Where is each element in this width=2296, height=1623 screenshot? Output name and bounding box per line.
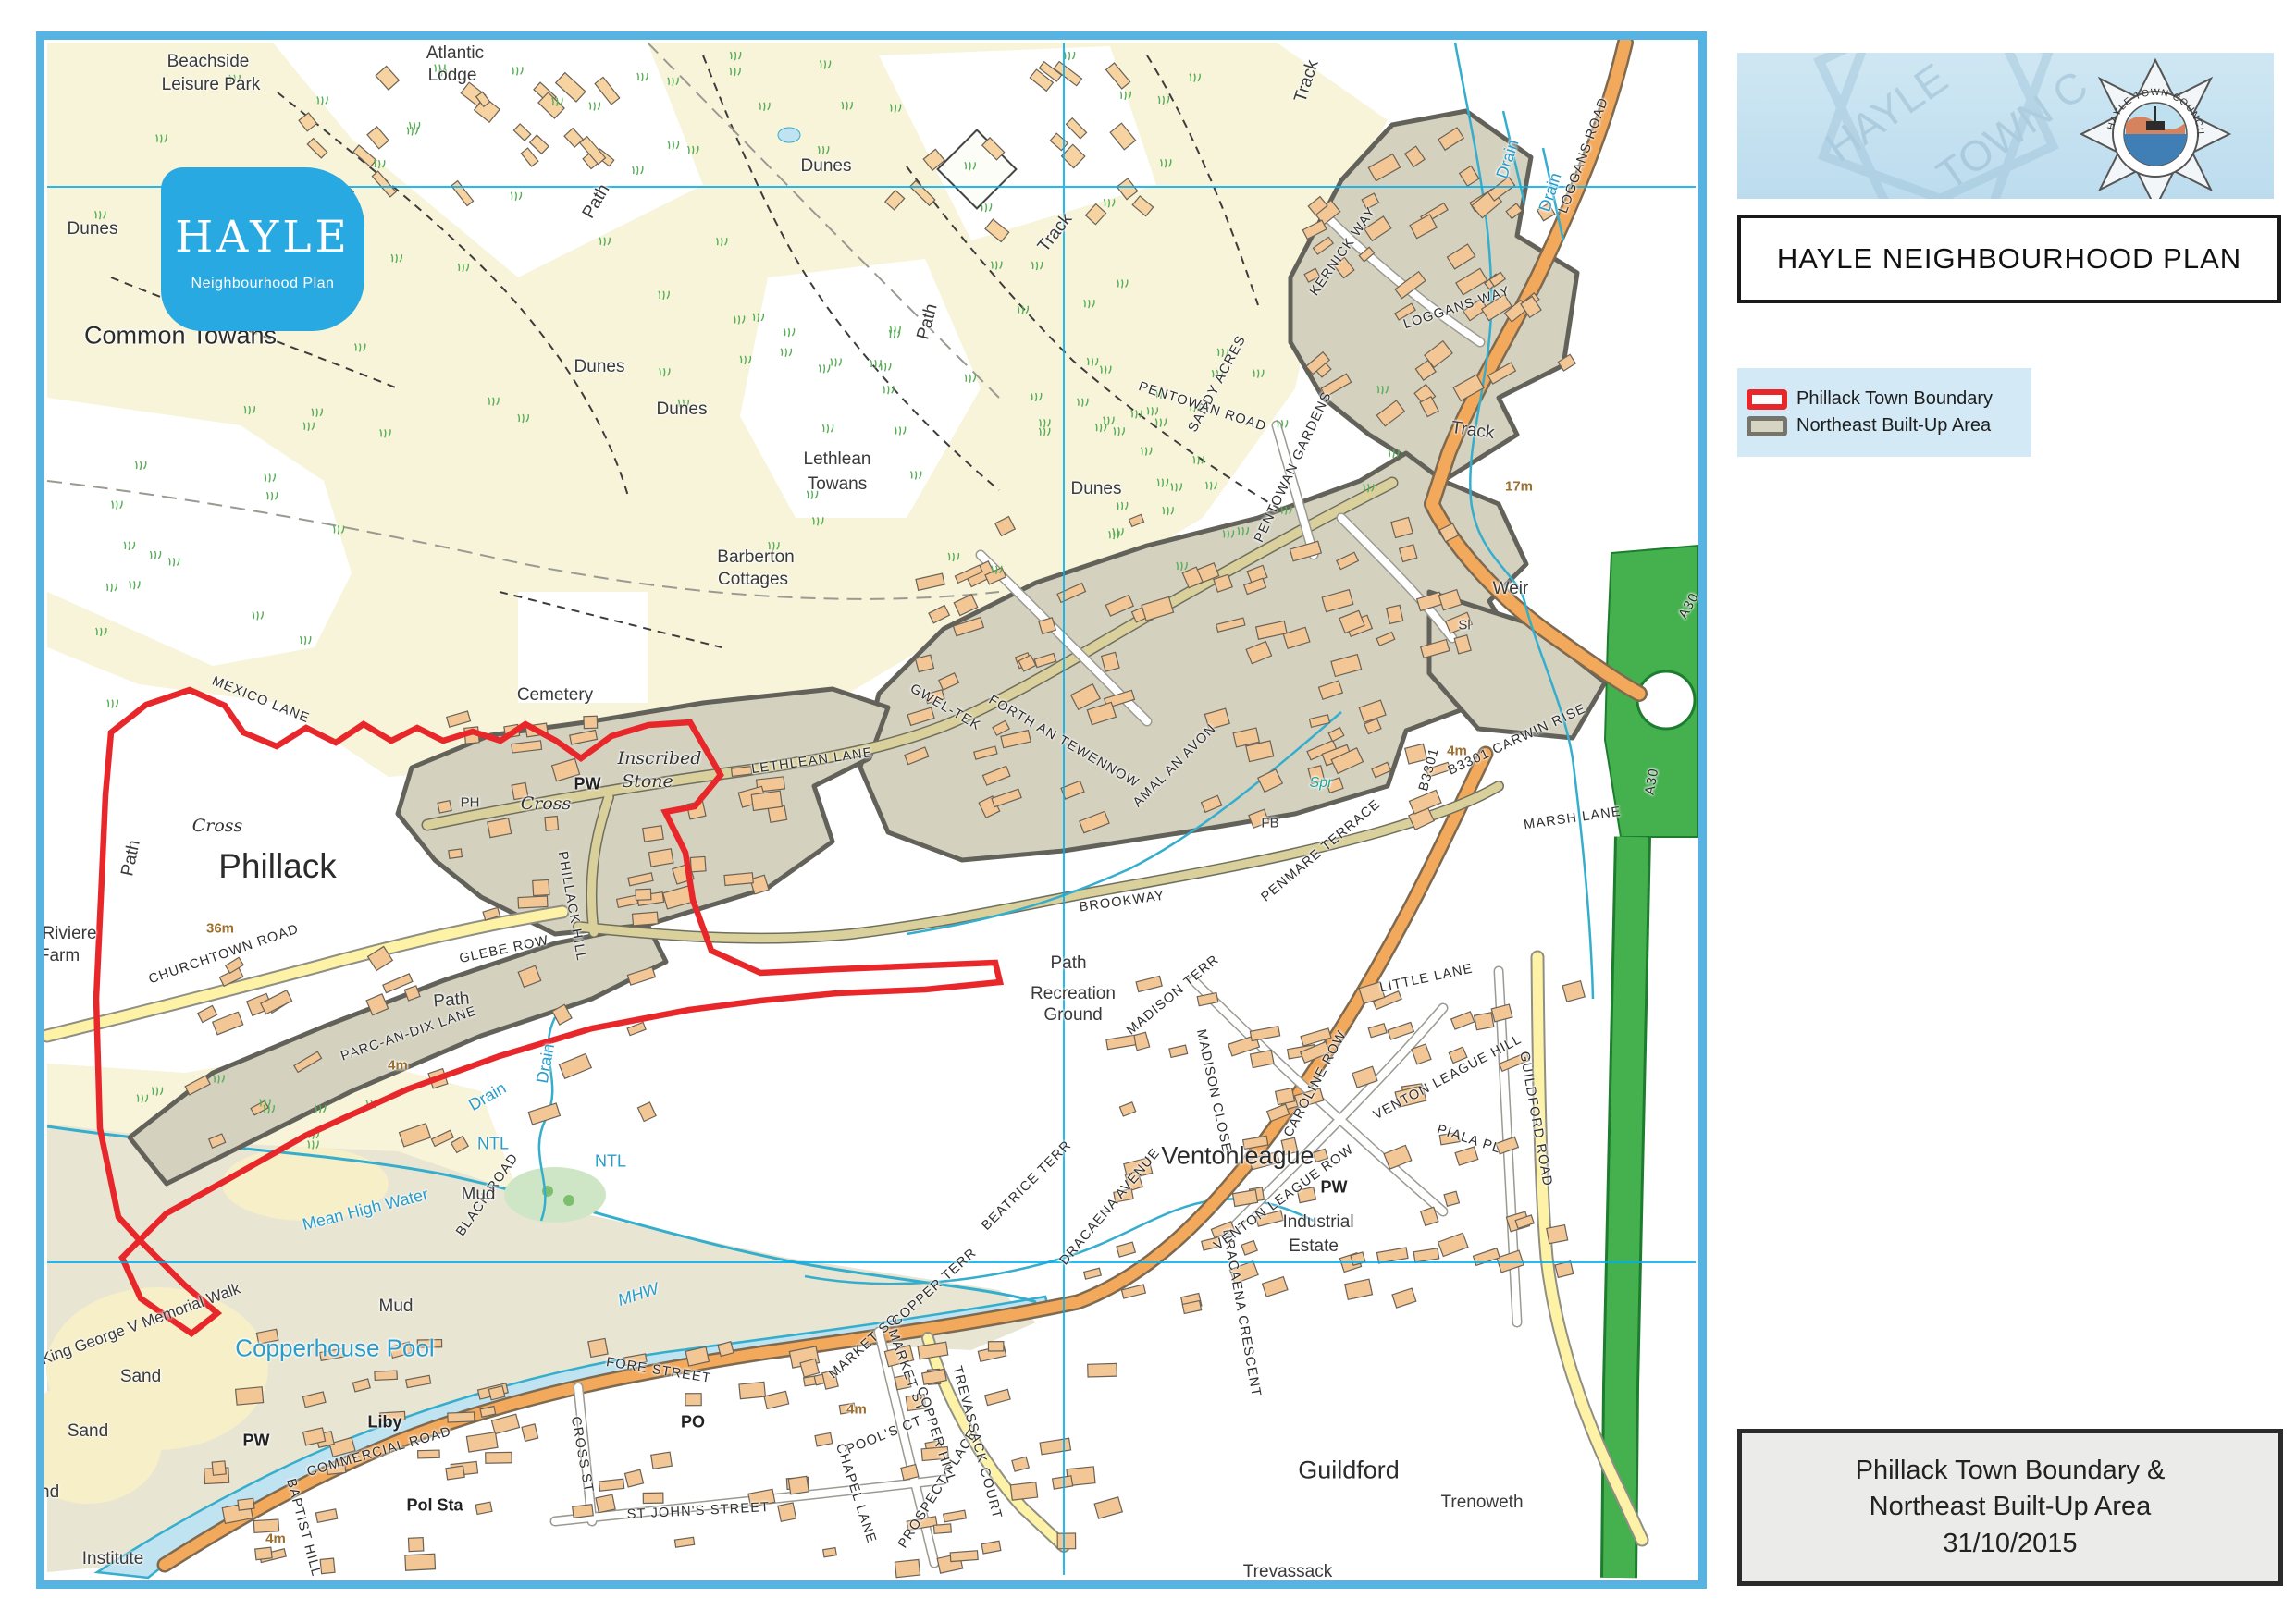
map-label: COMMERCIAL ROAD — [305, 1424, 453, 1480]
map-label: MARSH LANE — [1523, 805, 1622, 833]
svg-text:TOWN C: TOWN C — [1928, 61, 2096, 199]
map-label: Trenoweth — [1440, 1493, 1523, 1513]
page: BeachsideLeisure ParkAtlanticLodgeDunesC… — [0, 0, 2296, 1623]
map-label: Stone — [622, 771, 673, 792]
map-label: Ventonleague — [1161, 1142, 1314, 1171]
legend-label: Northeast Built-Up Area — [1796, 415, 1991, 436]
map-label: COPPER HILL — [914, 1385, 959, 1486]
caption-line-3: 31/10/2015 — [1943, 1526, 2077, 1562]
map-label: Path — [913, 301, 942, 341]
map-label: Estate — [1289, 1236, 1339, 1257]
map-label: DRACAENA CRESCENT — [1219, 1228, 1264, 1398]
map-canvas[interactable]: BeachsideLeisure ParkAtlanticLodgeDunesC… — [36, 31, 1707, 1589]
map-label: A30 — [1643, 767, 1662, 796]
map-label: COPPER TERR — [889, 1246, 980, 1330]
map-label: MHW — [615, 1279, 660, 1310]
legend-item-boundary: Phillack Town Boundary — [1747, 388, 2031, 410]
legend: Phillack Town Boundary Northeast Built-U… — [1737, 368, 2031, 457]
map-label: Dunes — [657, 400, 708, 420]
map-label: MEXICO LANE — [210, 674, 312, 727]
map-label: Track — [1034, 210, 1077, 256]
map-label: NTL — [477, 1135, 509, 1154]
map-label: B3301 CARWIN RISE — [1446, 701, 1588, 778]
map-label: GLEBE ROW — [458, 933, 550, 966]
map-label: Leisure Park — [162, 75, 261, 95]
map-label: PH — [461, 795, 480, 811]
legend-label: Phillack Town Boundary — [1796, 388, 1993, 410]
map-label: Phillack — [218, 847, 337, 886]
map-label: Dunes — [1071, 479, 1122, 499]
map-label: Mean High Water — [301, 1185, 430, 1235]
map-label: Cemetery — [517, 685, 593, 706]
caption-line-2: Northeast Built-Up Area — [1870, 1489, 2152, 1525]
map-label: LETHLEAN LANE — [750, 745, 873, 777]
council-crest-icon: HAYLE TOWN C HAYLE TOWN COUNCIL — [1737, 53, 2274, 199]
map-label: Drain — [533, 1042, 559, 1085]
map-label: POOL'S CT — [845, 1413, 925, 1457]
map-label: Lodge — [428, 66, 477, 86]
map-label: Inscribed — [618, 748, 702, 768]
map-label: Drain — [465, 1078, 510, 1115]
map-label: FORTH AN TEWENNOW — [986, 693, 1142, 791]
map-label: Cottages — [718, 570, 788, 590]
map-label: LOGGANS WAY — [1401, 284, 1512, 332]
map-label: Riviere — [44, 924, 97, 944]
map-label: Dunes — [574, 357, 625, 377]
map-label: 17m — [1505, 479, 1533, 495]
map-label: DRACAENA AVENUE — [1057, 1146, 1164, 1269]
boundary-swatch-icon — [1747, 389, 1787, 410]
map-label: LOGGANS ROAD — [1556, 95, 1611, 215]
hayle-np-logo: HAYLE Neighbourhood Plan — [161, 167, 364, 331]
map-label: B3301 — [1416, 746, 1442, 793]
map-label: PW — [1321, 1178, 1348, 1198]
map-label: Barberton — [717, 547, 794, 568]
map-label: 4m — [265, 1531, 286, 1547]
map-label: AMAL AN AVON — [1130, 721, 1219, 810]
map-label: Drain — [1492, 137, 1523, 180]
map-label: Beachside — [167, 52, 250, 72]
map-label: KERNICK WAY — [1307, 204, 1379, 299]
map-label: 36m — [206, 921, 234, 937]
map-label: PARC-AN-DIX LANE — [339, 1003, 478, 1064]
map-label: Dunes — [68, 219, 118, 240]
map-label: Sand — [44, 1482, 59, 1503]
caption-line-1: Phillack Town Boundary & — [1856, 1453, 2166, 1489]
map-label: Path — [433, 989, 471, 1012]
map-label: Track — [1290, 57, 1323, 105]
map-label: CHAPEL LANE — [833, 1442, 879, 1545]
map-label: Industrial — [1282, 1212, 1353, 1233]
map-label: 4m — [1447, 744, 1467, 759]
map-label: GWEL-TEK — [907, 682, 983, 734]
map-caption-box: Phillack Town Boundary & Northeast Built… — [1737, 1429, 2283, 1586]
map-label: Recreation — [1031, 984, 1116, 1004]
council-crest-banner: HAYLE TOWN C HAYLE TOWN COUNCIL — [1737, 53, 2274, 199]
map-label: Path — [579, 181, 615, 223]
builtup-swatch-icon — [1747, 416, 1787, 436]
map-label: Lethlean — [804, 449, 871, 470]
logo-subtitle: Neighbourhood Plan — [161, 276, 364, 292]
map-label: LITTLE LANE — [1378, 962, 1475, 996]
map-label: Sand — [120, 1367, 161, 1387]
map-label: FB — [1261, 816, 1278, 831]
map-label: Sl — [1458, 618, 1470, 633]
legend-item-builtup: Northeast Built-Up Area — [1747, 415, 2031, 436]
logo-title: HAYLE — [161, 212, 364, 263]
map-label: Towans — [808, 474, 867, 495]
map-label: Liby — [367, 1413, 401, 1432]
map-label: PW — [574, 775, 601, 794]
map-label: Atlantic — [426, 43, 484, 64]
map-label: NTL — [595, 1152, 626, 1172]
map-label: Guildford — [1298, 1457, 1400, 1485]
map-label: Track — [1450, 418, 1495, 444]
map-label: MADISON CLOSE — [1193, 1028, 1234, 1155]
plan-title: HAYLE NEIGHBOURHOOD PLAN — [1777, 242, 2241, 276]
map-label: Mud — [462, 1185, 496, 1205]
map-label: CAROLINE ROW — [1281, 1028, 1350, 1140]
map-label: Farm — [44, 946, 80, 966]
map-label: PHILLACK HILL — [555, 850, 589, 962]
map-label: A30 — [1676, 590, 1698, 621]
map-label: Copperhouse Pool — [235, 1334, 434, 1363]
map-label: 4m — [388, 1058, 408, 1074]
map-label: Cross — [521, 793, 572, 814]
map-label: PENTOWAN GARDENS — [1252, 389, 1335, 545]
map-label: Institute — [82, 1549, 144, 1569]
map-label: Dunes — [801, 156, 852, 177]
map-label: Sand — [68, 1421, 108, 1442]
map-label: BROOKWAY — [1079, 889, 1167, 916]
map-label: GUILDFORD ROAD — [1516, 1051, 1554, 1188]
map-label: Trevassack — [1243, 1562, 1332, 1580]
map-label: Ground — [1043, 1005, 1102, 1026]
map-label: BEATRICE TERR — [979, 1137, 1074, 1233]
map-label: Weir — [1493, 579, 1529, 599]
map-label: FORE STREET — [605, 1355, 712, 1386]
map-label: Mud — [379, 1297, 414, 1317]
map-label: CROSS ST — [568, 1415, 596, 1494]
map-label: Path — [117, 839, 145, 879]
map-label: PENMARE TERRACE — [1259, 797, 1384, 905]
map-label: BAPTIST HILL — [283, 1477, 324, 1579]
map-label: 4m — [846, 1402, 867, 1418]
map-label: King George V Memorial Walk — [44, 1280, 243, 1370]
map-label: ST JOHN'S STREET — [626, 1500, 770, 1522]
map-label: PO — [681, 1413, 705, 1432]
map-label: Cross — [192, 816, 243, 836]
map-label: MADISON TERR — [1124, 953, 1222, 1039]
map-label: VENTON LEAGUE HILL — [1371, 1032, 1524, 1123]
map-label: PIALA PL — [1435, 1122, 1502, 1156]
plan-title-box: HAYLE NEIGHBOURHOOD PLAN — [1737, 215, 2281, 303]
map-label: Path — [1050, 953, 1086, 974]
map-label: Spr — [1310, 775, 1333, 792]
map-label: Pol Sta — [406, 1496, 463, 1516]
map-label: PW — [243, 1432, 270, 1451]
